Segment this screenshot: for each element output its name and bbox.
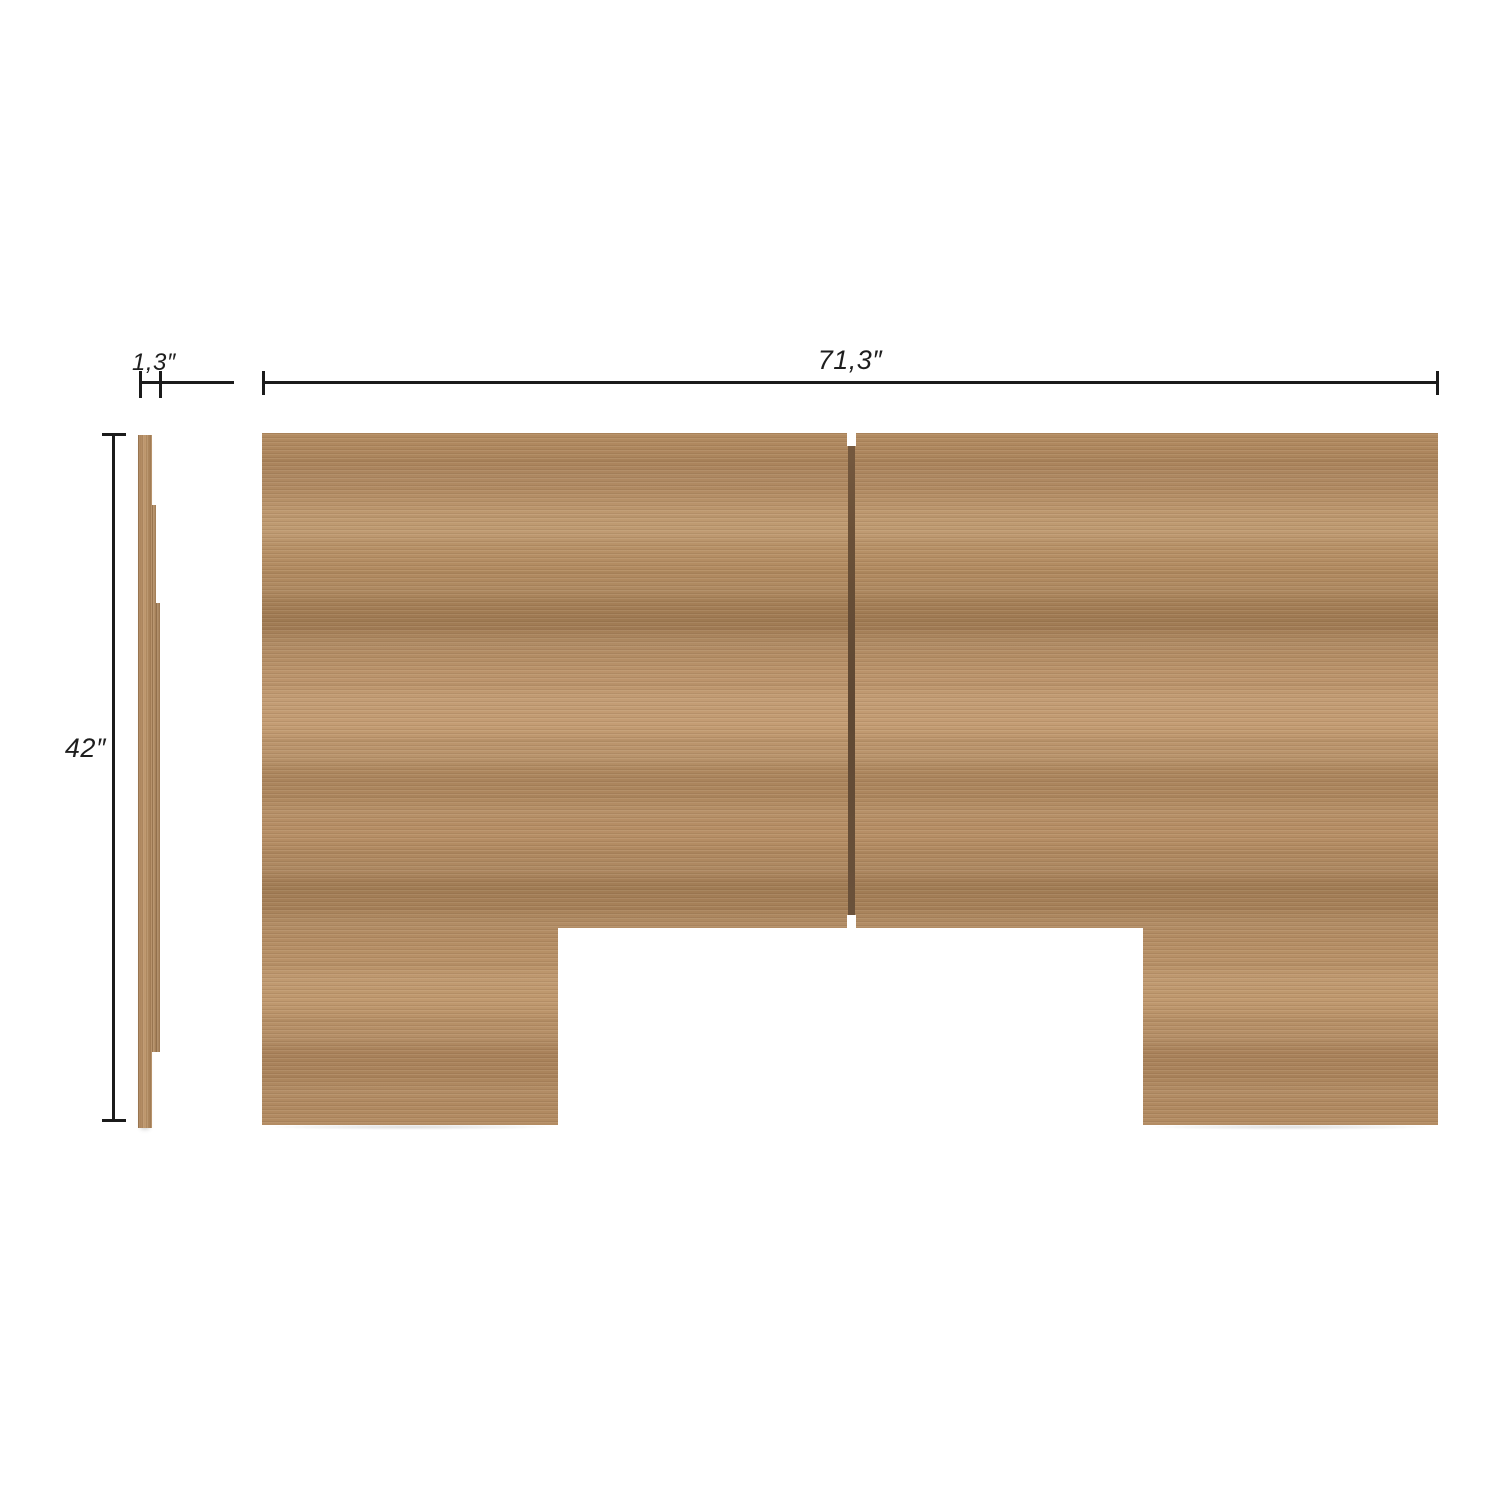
right-leg-shadow	[1144, 1124, 1436, 1130]
height-dimension-line	[112, 434, 115, 1122]
height-dimension-tick-bottom	[102, 1119, 126, 1122]
height-dimension-label: 42″	[58, 735, 106, 762]
center-seam-gap-top	[847, 433, 856, 446]
center-seam-gap-bottom	[847, 915, 856, 928]
thickness-dimension-tick-left	[139, 371, 142, 398]
thickness-dimension-tick-right	[159, 371, 162, 398]
width-dimension-tick-right	[1436, 371, 1439, 395]
side-rail-layer-2	[156, 603, 160, 1052]
height-dimension-tick-top	[102, 433, 126, 436]
product-dimension-diagram: 1,3″ 71,3″ 42″	[0, 0, 1500, 1500]
width-dimension-line	[262, 381, 1439, 384]
width-dimension-tick-left	[262, 371, 265, 395]
side-panel-profile	[138, 435, 152, 1128]
width-dimension-label: 71,3″	[262, 347, 1438, 374]
thickness-dimension-line	[139, 381, 234, 384]
bottom-notch-cutout	[558, 928, 1143, 1125]
center-seam-line	[848, 446, 855, 915]
left-leg-shadow	[264, 1124, 556, 1130]
headboard-front-view	[262, 433, 1438, 1125]
